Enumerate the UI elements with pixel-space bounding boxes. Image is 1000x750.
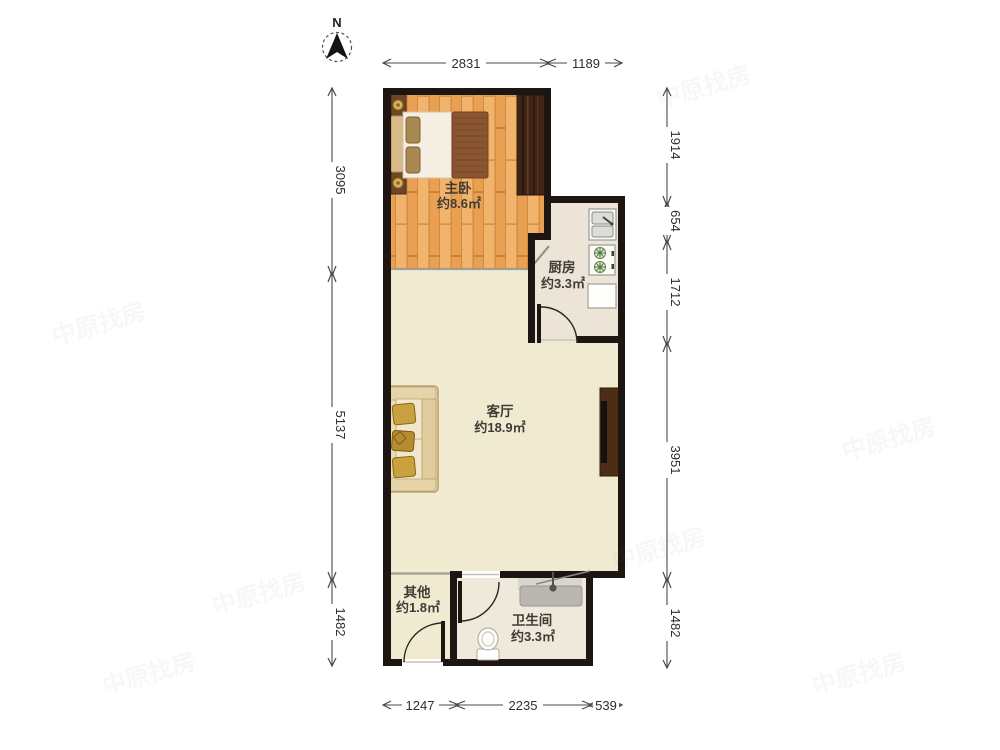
dim-label: 3095: [333, 166, 348, 195]
dim-label: 654: [668, 210, 683, 232]
room-area-living: 约18.9㎡: [474, 420, 525, 435]
dimension-bottom: 1247 2235 539: [383, 697, 622, 713]
dim-label: 1712: [668, 278, 683, 307]
dim-label: 3951: [668, 446, 683, 475]
wardrobe: [517, 95, 544, 195]
kitchen-counter: [588, 284, 616, 308]
dim-label: 1189: [572, 56, 600, 71]
room-area-kitchen: 约3.3㎡: [541, 276, 585, 291]
watermark-text: 中原找房: [654, 60, 754, 113]
north-arrow-icon: [326, 33, 348, 59]
room-label-kitchen: 厨房: [549, 259, 576, 275]
watermark-text: 中原找房: [809, 647, 909, 700]
room-label-bedroom: 主卧: [445, 180, 472, 196]
room-label-bathroom: 卫生间: [512, 612, 553, 628]
dim-label: 2831: [452, 56, 481, 71]
dim-label: 5137: [333, 411, 348, 440]
watermark-text: 中原找房: [99, 647, 199, 700]
dim-label: 539: [595, 698, 617, 713]
dim-label: 1482: [668, 609, 683, 638]
north-indicator: N: [323, 15, 352, 62]
dimension-left: 3095 5137 1482: [325, 88, 348, 666]
watermark-text: 中原找房: [209, 567, 309, 620]
floor-plan-canvas: 主卧 约8.6㎡ 厨房 约3.3㎡ 客厅 约18.9㎡ 其他 约1.8㎡ 卫生间…: [0, 0, 1000, 750]
kitchen-stove: [589, 245, 615, 275]
dimension-right: 1914 654 1712 3951 1482: [660, 88, 683, 668]
dimension-top: 2831 1189: [383, 55, 622, 71]
dim-label: 1247: [406, 698, 435, 713]
room-area-bathroom: 约3.3㎡: [511, 629, 555, 644]
dim-label: 1914: [668, 131, 683, 160]
dim-label: 2235: [509, 698, 538, 713]
watermark-text: 中原找房: [839, 412, 939, 465]
dim-label: 1482: [333, 608, 348, 637]
north-label: N: [332, 15, 341, 30]
room-area-bedroom: 约8.6㎡: [437, 196, 481, 211]
kitchen-sink: [589, 209, 616, 240]
sofa: [384, 386, 438, 492]
floor-plan-image: 主卧 约8.6㎡ 厨房 约3.3㎡ 客厅 约18.9㎡ 其他 约1.8㎡ 卫生间…: [0, 0, 1000, 750]
tv-console: [600, 388, 619, 476]
room-label-other: 其他: [404, 584, 431, 600]
toilet: [477, 628, 499, 660]
watermark-text: 中原找房: [49, 297, 149, 350]
room-label-living: 客厅: [486, 403, 515, 419]
room-area-other: 约1.8㎡: [396, 600, 440, 615]
